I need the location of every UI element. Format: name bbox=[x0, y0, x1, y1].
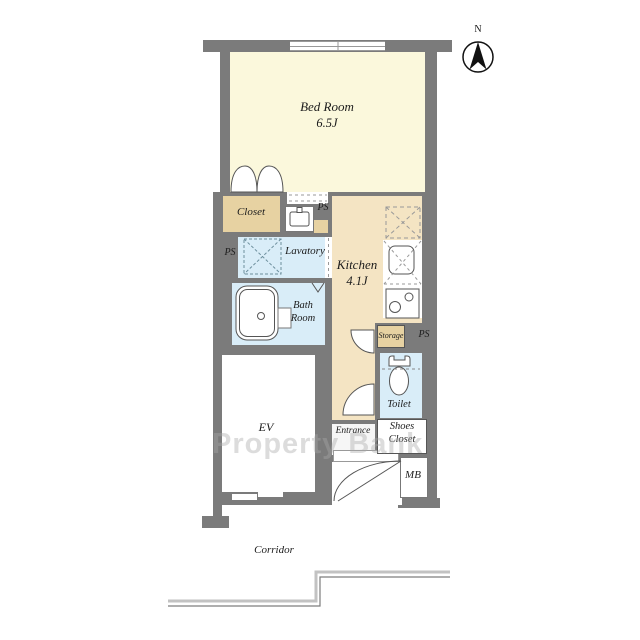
lavatory-label: Lavatory bbox=[255, 246, 355, 258]
compass-n-label: N bbox=[470, 25, 486, 36]
toilet-label: Toilet bbox=[374, 399, 424, 410]
bathroom-label-line1: Bath bbox=[255, 300, 351, 311]
corridor-boundary-line bbox=[168, 572, 450, 606]
closet-label: Closet bbox=[222, 207, 280, 219]
ps-label-2: PS bbox=[217, 248, 243, 259]
kitchen-size: 4.1J bbox=[307, 275, 407, 288]
storage-label: Storage bbox=[376, 332, 406, 340]
watermark: Property Bank bbox=[212, 428, 423, 461]
room-kitchen-hall bbox=[332, 323, 375, 420]
entrance-alcove bbox=[332, 462, 402, 505]
ps-shaft-box bbox=[314, 220, 328, 233]
bathroom-label-line2: Room bbox=[255, 313, 351, 324]
north-arrow-icon bbox=[463, 42, 493, 72]
window bbox=[290, 41, 385, 51]
wall-notch-white bbox=[213, 52, 220, 192]
ev-door-left bbox=[232, 494, 257, 500]
meter-box-label: MB bbox=[398, 470, 428, 482]
kitchen-label: Kitchen bbox=[307, 258, 407, 272]
wall-bottom-right bbox=[398, 498, 440, 508]
wall-left-foot bbox=[202, 516, 229, 528]
ev-door-right bbox=[258, 491, 283, 497]
bedroom-size: 6.5J bbox=[265, 117, 389, 130]
bedroom-label: Bed Room bbox=[265, 100, 389, 114]
corridor-label: Corridor bbox=[242, 545, 306, 557]
floor-plan: Bed Room 6.5J Closet PS Lavatory PS Bath… bbox=[0, 0, 640, 640]
ps-label-3: PS bbox=[411, 330, 437, 341]
ps-label-1: PS bbox=[310, 203, 336, 214]
